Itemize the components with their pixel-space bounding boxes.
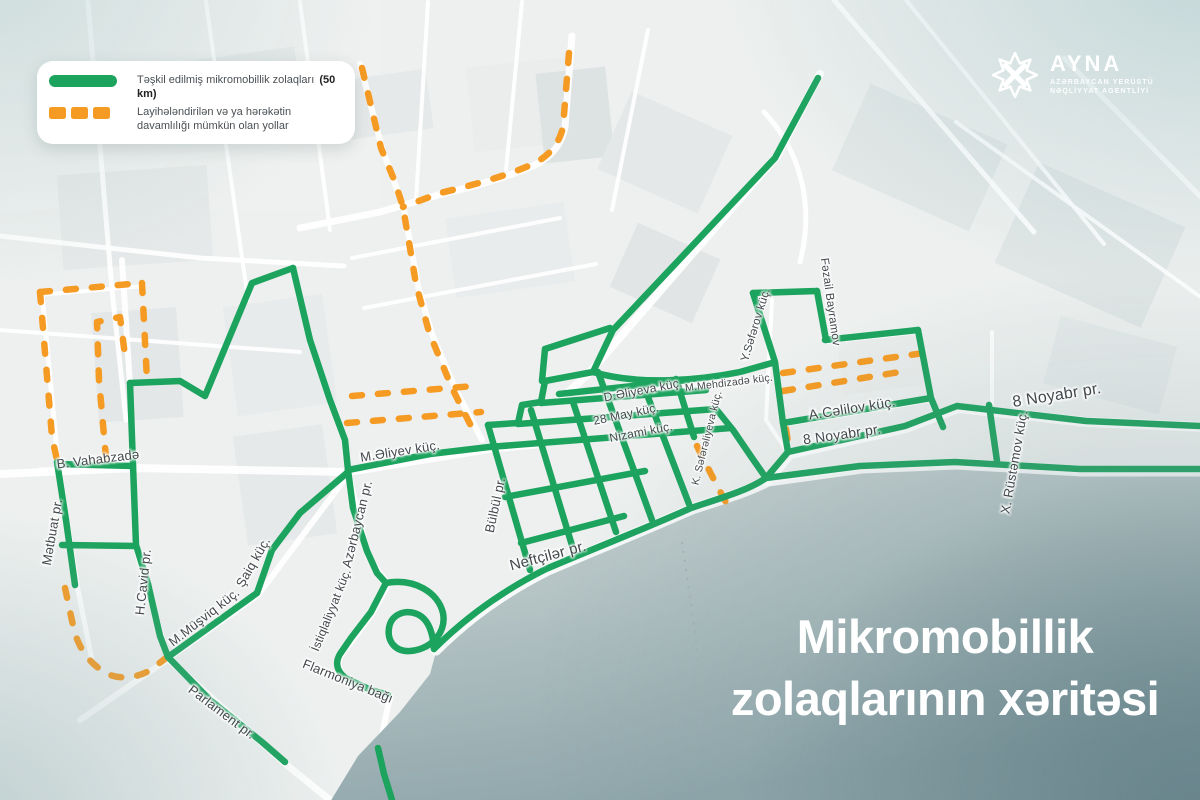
street-label-m-mehdizade-kuc: M.Mehdizadə küç. (684, 372, 773, 395)
micromobility-map-infographic: B. VahabzadəMətbuat pr.H.Cavid pr.M.Müşv… (0, 0, 1200, 800)
legend-row-planned: Layihələndirilən və ya hərəkətin davamlı… (49, 105, 343, 134)
logo-subtitle: AZƏRBAYCAN YERÜSTÜ NƏQLİYYAT AGENTLİYİ (1050, 78, 1154, 97)
logo-title: AYNA (1050, 53, 1154, 75)
street-label-m-musviq-kuc: M.Müşviq küç. (166, 585, 243, 650)
ayna-logo: AYNA AZƏRBAYCAN YERÜSTÜ NƏQLİYYAT AGENTL… (990, 50, 1154, 100)
street-label-d-eliyeva-kuc: D.Əliyeva küç. (602, 376, 683, 405)
street-label-istiqlaliyyat-kuc: İstiqlaliyyat küç. (308, 567, 354, 654)
street-label-m-eliyev-kuc: M.Əliyev küç. (359, 437, 441, 464)
street-label-h-cavid-pr: H.Cavid pr. (132, 548, 154, 616)
map-title-line1: Mikromobillik (700, 606, 1190, 668)
street-label-fezail-bayramov: Fəzail Bayramov (818, 257, 842, 346)
map-title-line2: zolaqlarının xəritəsi (700, 668, 1190, 730)
street-label-neftciler-pr: Neftçilər pr. (508, 538, 588, 575)
legend-lane-label: Təşkil edilmiş mikromobillik zolaqları (… (127, 73, 343, 102)
legend-card: Təşkil edilmiş mikromobillik zolaqları (… (37, 61, 355, 144)
ayna-emblem-icon (990, 50, 1040, 100)
street-label-nizami-kuc: Nizami küç. (608, 419, 674, 445)
street-label-azerbaycan-pr: Azərbaycan pr. (339, 479, 375, 569)
street-label-metbuat-pr: Mətbuat pr. (39, 498, 65, 567)
street-label-8-noyabr-pr-east: 8 Noyabr pr. (1011, 380, 1102, 412)
street-label-parlament-pr: Parlament pr. (186, 682, 259, 742)
street-label-flarmoniya-bagi: Flarmoniya bağı (301, 656, 396, 706)
street-label-y-seferov-kuc: Y.Səfərov küç. (739, 287, 773, 363)
street-label-saiq-kuc: Şaiq küç. (233, 534, 274, 589)
street-label-k-sefereliyeva-kuc: K. Səfərəliyeva küç. (689, 390, 724, 487)
street-label-8-noyabr-pr-west: 8 Noyabr pr. (802, 421, 882, 448)
map-title: Mikromobillik zolaqlarının xəritəsi (700, 606, 1190, 730)
street-label-x-rustemov-kuc: X. Rüstəmov küç. (997, 409, 1030, 515)
street-label-bulbul-pr: Bülbül pr. (482, 476, 508, 534)
lane-line-swatch (49, 73, 127, 87)
street-label-b-vahabzade: B. Vahabzadə (56, 446, 140, 471)
street-label-a-celilov-kuc: A.Cəlilov küç. (807, 393, 896, 423)
planned-line-swatch (49, 105, 127, 119)
legend-row-lanes: Təşkil edilmiş mikromobillik zolaqları (… (49, 73, 343, 102)
legend-planned-label: Layihələndirilən və ya hərəkətin davamlı… (127, 105, 343, 134)
